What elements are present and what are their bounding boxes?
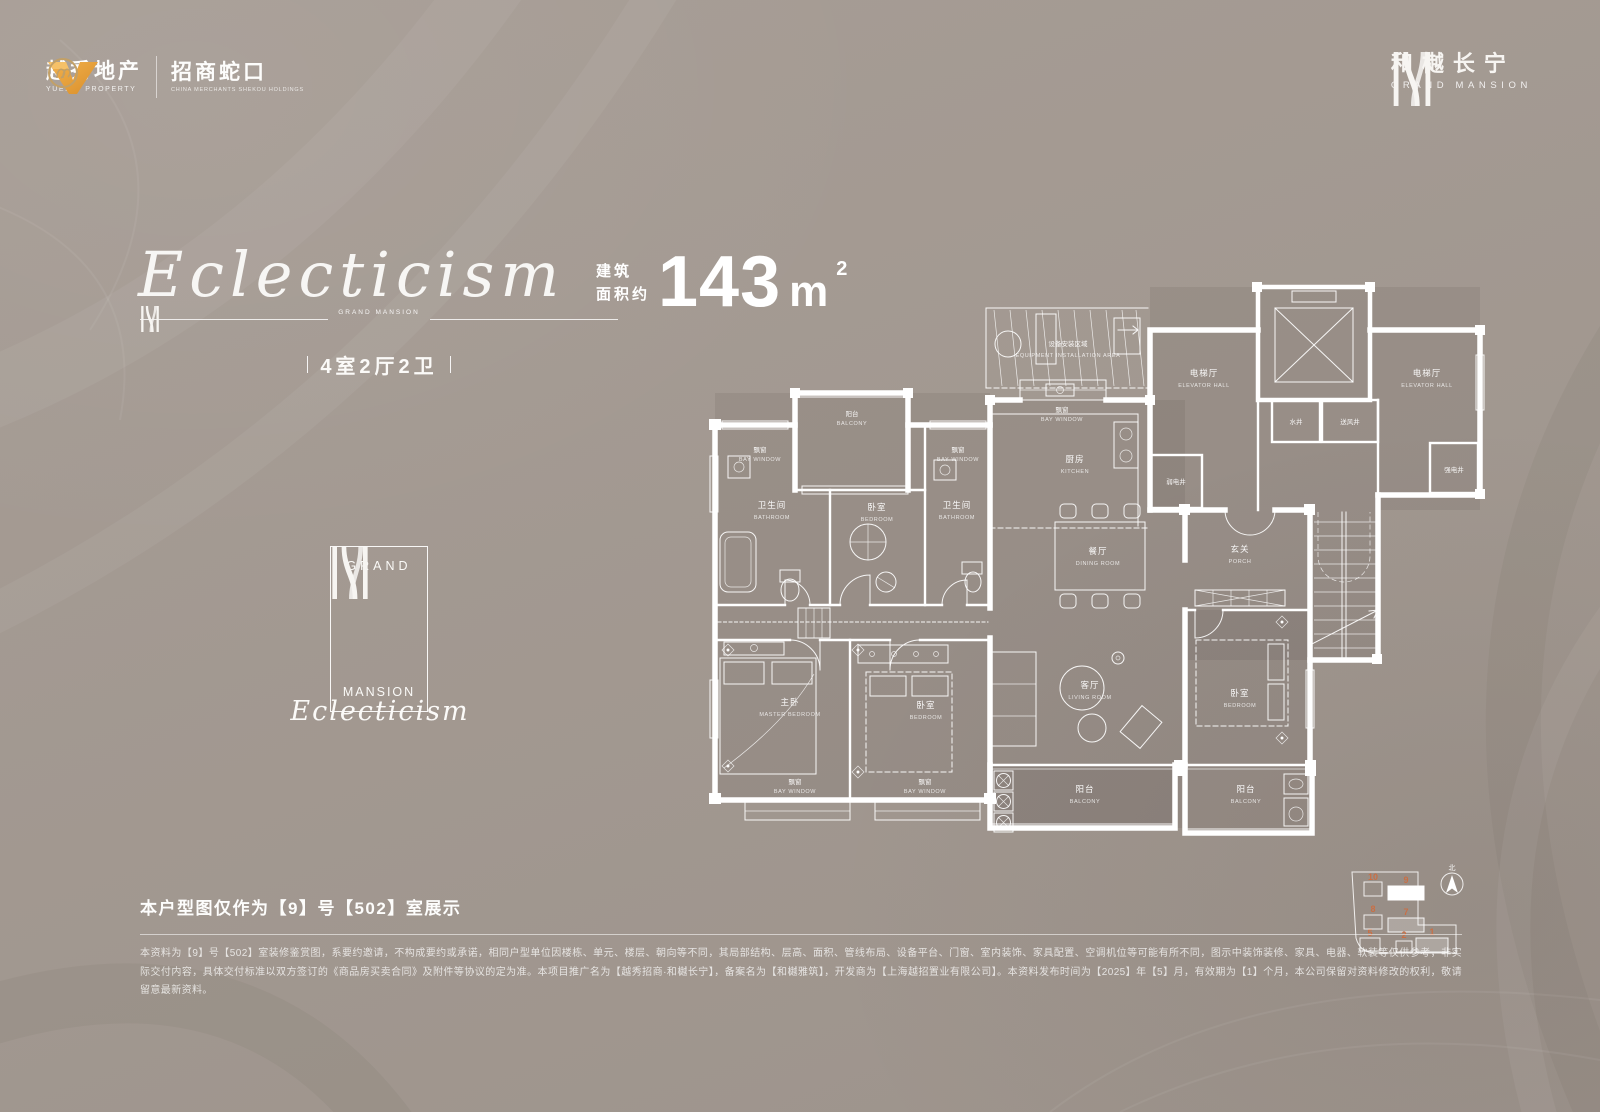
- area-prefix: 建筑 面积约: [596, 260, 650, 307]
- label-hall-left-cn: 电梯厅: [1190, 368, 1219, 378]
- divider-line-right: [430, 319, 618, 320]
- label-shaft-water: 水井: [1290, 417, 1304, 426]
- label-bedroom-right-cn: 卧室: [1230, 688, 1249, 698]
- label-master-en: MASTER BEDROOM: [759, 712, 820, 718]
- developer-logos: 越秀地产 YUEXIU PROPERTY 招商蛇口 CHINA MERCHANT…: [46, 56, 304, 98]
- label-equipment-en: EQUIPMENT INSTALLATION AREA: [1016, 353, 1121, 359]
- north-arrow-icon: 北: [1441, 864, 1463, 895]
- label-kitchen-cn: 厨房: [1065, 454, 1084, 464]
- label-bedroom-right-en: BEDROOM: [1224, 703, 1257, 709]
- area-value: 143: [658, 246, 781, 318]
- label-bedroom-top-cn: 卧室: [867, 502, 886, 512]
- label-equipment-cn: 设备安装区域: [1049, 339, 1089, 348]
- label-bay-bl-cn: 飘窗: [789, 777, 802, 786]
- area-prefix-line1: 建筑: [596, 260, 650, 283]
- label-bathroom-l-en: BATHROOM: [754, 515, 790, 521]
- disclaimer-text: 本资料为【9】号【502】室装修鉴赏图，系要约邀请，不构成要约或承诺，相同户型单…: [140, 945, 1462, 1001]
- label-bay-kitchen-en: BAY WINDOW: [1041, 417, 1083, 423]
- label-hall-right-cn: 电梯厅: [1413, 368, 1442, 378]
- equipment-area: [986, 308, 1148, 388]
- shekou-en: CHINA MERCHANTS SHEKOU HOLDINGS: [171, 87, 304, 93]
- area-sup: 2: [836, 258, 847, 281]
- label-kitchen-en: KITCHEN: [1061, 469, 1089, 475]
- label-master-cn: 主卧: [780, 697, 799, 707]
- label-bathroom-l-cn: 卫生间: [758, 500, 787, 510]
- label-balcony-br-en: BALCONY: [1231, 799, 1262, 805]
- badge-script-text: Eclecticism: [288, 696, 472, 727]
- label-balcony-top-cn: 阳台: [846, 409, 859, 418]
- label-dining-cn: 餐厅: [1088, 546, 1107, 556]
- label-living-en: LIVING ROOM: [1068, 695, 1111, 701]
- label-bay-tc-en: BAY WINDOW: [937, 457, 979, 463]
- footer-divider: [140, 934, 1462, 935]
- shekou-cn: 招商蛇口: [171, 61, 304, 84]
- label-dining-en: DINING ROOM: [1076, 561, 1121, 567]
- label-bay-bm-en: BAY WINDOW: [904, 789, 946, 795]
- divider-logo-text: GRAND MANSION: [338, 309, 420, 316]
- north-label: 北: [1449, 864, 1456, 872]
- label-bedroom-mid-cn: 卧室: [916, 700, 935, 710]
- divider-mark-icon: [140, 306, 160, 332]
- hero-divider: GRAND MANSION: [140, 306, 618, 320]
- area-prefix-line2: 面积约: [596, 283, 650, 306]
- site-num-10: 10: [1368, 872, 1378, 882]
- label-bay-tl-en: BAY WINDOW: [739, 457, 781, 463]
- layout-spec: 4室2厅2卫: [140, 350, 618, 379]
- label-shaft-strong: 强电井: [1444, 465, 1464, 474]
- site-num-9: 9: [1403, 875, 1408, 885]
- layout-bar-right: [450, 356, 451, 373]
- label-bay-bm-cn: 飘窗: [919, 777, 932, 786]
- label-living-cn: 客厅: [1080, 680, 1099, 690]
- badge-mark-icon: [331, 547, 369, 599]
- label-bay-bl-en: BAY WINDOW: [774, 789, 816, 795]
- display-note: 本户型图仅作为【9】号【502】室展示: [140, 894, 1462, 919]
- label-shaft-weak: 弱电井: [1166, 477, 1186, 486]
- brand-logo: 和樾长宁 GRAND MANSION: [1391, 52, 1532, 92]
- footer: 本户型图仅作为【9】号【502】室展示 本资料为【9】号【502】室装修鉴赏图，…: [140, 894, 1462, 1001]
- grand-mansion-mark-icon: [1391, 52, 1433, 106]
- label-balcony-br-cn: 阳台: [1236, 784, 1255, 794]
- layout-label: 4室2厅2卫: [320, 350, 437, 379]
- grand-mansion-badge: GRAND MANSION: [330, 546, 428, 712]
- label-bathroom-m-cn: 卫生间: [943, 500, 972, 510]
- label-bedroom-mid-en: BEDROOM: [910, 715, 943, 721]
- floor-plan: 飘窗 BAY WINDOW 阳台 BALCONY 飘窗 BAY WINDOW 卫…: [709, 282, 1485, 833]
- shekou-logo-text: 招商蛇口 CHINA MERCHANTS SHEKOU HOLDINGS: [171, 61, 304, 93]
- label-bedroom-top-en: BEDROOM: [861, 517, 894, 523]
- label-balcony-top-en: BALCONY: [837, 421, 868, 427]
- area-block: 建筑 面积约 143 m 2: [596, 246, 847, 318]
- label-hall-left-en: ELEVATOR HALL: [1178, 383, 1230, 389]
- layout-bar-left: [307, 356, 308, 373]
- logo-divider: [156, 56, 157, 98]
- label-bay-tl-cn: 飘窗: [754, 445, 767, 454]
- label-shaft-air: 送风井: [1340, 417, 1360, 426]
- label-hall-right-en: ELEVATOR HALL: [1401, 383, 1453, 389]
- label-porch-cn: 玄关: [1230, 544, 1249, 554]
- label-bay-tc-cn: 飘窗: [952, 445, 965, 454]
- label-bathroom-m-en: BATHROOM: [939, 515, 975, 521]
- divider-logo: GRAND MANSION: [338, 306, 420, 320]
- area-unit: m: [789, 270, 828, 314]
- divider-line-left: [140, 319, 328, 320]
- label-porch-en: PORCH: [1229, 559, 1252, 565]
- shekou-logo-icon: [46, 56, 80, 90]
- hero-script-text: Eclecticism: [138, 238, 565, 311]
- label-bay-kitchen-cn: 飘窗: [1056, 405, 1069, 414]
- label-balcony-bl-en: BALCONY: [1070, 799, 1101, 805]
- label-balcony-bl-cn: 阳台: [1075, 784, 1094, 794]
